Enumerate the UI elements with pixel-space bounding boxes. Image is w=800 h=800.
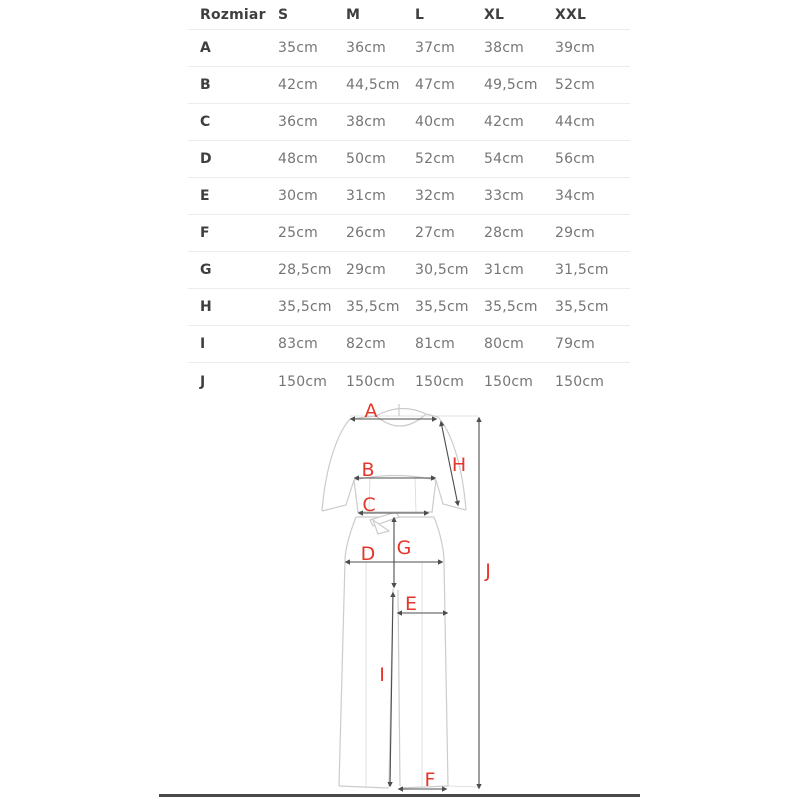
size-table-row-f: F 25cm 26cm 27cm 28cm 29cm <box>188 215 630 252</box>
size-value: 150cm <box>415 374 484 390</box>
size-table-header-row: Rozmiar S M L XL XXL <box>188 0 630 30</box>
size-table-row-i: I 83cm 82cm 81cm 80cm 79cm <box>188 326 630 363</box>
size-value: 29cm <box>555 225 630 241</box>
size-table-row-h: H 35,5cm 35,5cm 35,5cm 35,5cm 35,5cm <box>188 289 630 326</box>
size-table: Rozmiar S M L XL XXL A 35cm 36cm 37cm 38… <box>188 0 630 401</box>
label-D: D <box>361 543 376 565</box>
size-value: 42cm <box>484 114 555 130</box>
size-value: 28,5cm <box>278 262 346 278</box>
dimension-label: E <box>200 188 278 204</box>
size-value: 52cm <box>555 77 630 93</box>
left-leg-hem <box>339 786 389 788</box>
dimension-label: G <box>200 262 278 278</box>
size-value: 31,5cm <box>555 262 630 278</box>
size-value: 35,5cm <box>555 299 630 315</box>
hem-leader-line <box>448 786 479 787</box>
bottom-divider <box>159 794 640 797</box>
size-value: 47cm <box>415 77 484 93</box>
garment-measurement-diagram: A B C D E F G H I J <box>0 396 800 800</box>
dimension-label: C <box>200 114 278 130</box>
left-sleeve-hem <box>322 480 354 511</box>
label-H: H <box>452 454 466 476</box>
size-value: 40cm <box>415 114 484 130</box>
size-table-row-c: C 36cm 38cm 40cm 42cm 44cm <box>188 104 630 141</box>
label-I: I <box>379 664 385 686</box>
column-header-m: M <box>346 7 415 23</box>
size-value: 54cm <box>484 151 555 167</box>
bodice-seam-right <box>415 476 416 512</box>
size-value: 35cm <box>278 40 346 56</box>
size-value: 26cm <box>346 225 415 241</box>
size-value: 35,5cm <box>484 299 555 315</box>
size-value: 52cm <box>415 151 484 167</box>
bodice-right-side <box>432 480 436 512</box>
size-value: 83cm <box>278 336 346 352</box>
column-header-l: L <box>415 7 484 23</box>
dimension-label: I <box>200 336 278 352</box>
size-value: 48cm <box>278 151 346 167</box>
size-table-row-a: A 35cm 36cm 37cm 38cm 39cm <box>188 30 630 67</box>
size-value: 44,5cm <box>346 77 415 93</box>
measurement-labels: A B C D E F G H I J <box>361 400 491 791</box>
size-value: 150cm <box>278 374 346 390</box>
size-value: 33cm <box>484 188 555 204</box>
dimension-label: H <box>200 299 278 315</box>
label-E: E <box>405 593 417 615</box>
size-value: 34cm <box>555 188 630 204</box>
size-value: 35,5cm <box>346 299 415 315</box>
size-value: 38cm <box>484 40 555 56</box>
dimension-label: A <box>200 40 278 56</box>
size-value: 44cm <box>555 114 630 130</box>
right-shoulder <box>426 414 438 417</box>
size-value: 79cm <box>555 336 630 352</box>
size-value: 28cm <box>484 225 555 241</box>
size-table-row-b: B 42cm 44,5cm 47cm 49,5cm 52cm <box>188 67 630 104</box>
size-value: 56cm <box>555 151 630 167</box>
size-value: 31cm <box>346 188 415 204</box>
size-value: 30,5cm <box>415 262 484 278</box>
right-leg-inseam <box>398 590 400 786</box>
size-value: 35,5cm <box>415 299 484 315</box>
size-value: 39cm <box>555 40 630 56</box>
dimension-label: B <box>200 77 278 93</box>
size-value: 150cm <box>555 374 630 390</box>
size-value: 31cm <box>484 262 555 278</box>
back-neckline <box>376 408 426 416</box>
column-header-s: S <box>278 7 346 23</box>
right-leg-outer <box>434 517 448 786</box>
size-value: 82cm <box>346 336 415 352</box>
size-value: 27cm <box>415 225 484 241</box>
left-leg-outer <box>339 517 356 786</box>
label-C: C <box>362 494 375 516</box>
label-B: B <box>361 459 374 481</box>
size-value: 150cm <box>346 374 415 390</box>
size-value: 81cm <box>415 336 484 352</box>
size-value: 50cm <box>346 151 415 167</box>
size-chart-page: Rozmiar S M L XL XXL A 35cm 36cm 37cm 38… <box>0 0 800 800</box>
size-value: 35,5cm <box>278 299 346 315</box>
size-value: 80cm <box>484 336 555 352</box>
size-table-row-g: G 28,5cm 29cm 30,5cm 31cm 31,5cm <box>188 252 630 289</box>
label-G: G <box>397 537 412 559</box>
dimension-label: F <box>200 225 278 241</box>
label-A: A <box>365 400 378 422</box>
size-value: 29cm <box>346 262 415 278</box>
dimension-label: D <box>200 151 278 167</box>
right-sleeve-hem <box>436 480 466 510</box>
size-value: 150cm <box>484 374 555 390</box>
size-value: 38cm <box>346 114 415 130</box>
dimension-label: J <box>200 374 278 390</box>
bodice-left-side <box>354 480 358 512</box>
size-value: 42cm <box>278 77 346 93</box>
size-value: 36cm <box>346 40 415 56</box>
size-value: 25cm <box>278 225 346 241</box>
size-value: 36cm <box>278 114 346 130</box>
size-value: 49,5cm <box>484 77 555 93</box>
size-value: 30cm <box>278 188 346 204</box>
size-value: 37cm <box>415 40 484 56</box>
label-F: F <box>425 769 436 791</box>
column-header-rozmiar: Rozmiar <box>200 7 278 23</box>
column-header-xxl: XXL <box>555 7 630 23</box>
label-J: J <box>484 560 491 582</box>
left-sleeve-outer <box>322 419 350 511</box>
column-header-xl: XL <box>484 7 555 23</box>
size-table-row-e: E 30cm 31cm 32cm 33cm 34cm <box>188 178 630 215</box>
size-table-row-d: D 48cm 50cm 52cm 54cm 56cm <box>188 141 630 178</box>
size-value: 32cm <box>415 188 484 204</box>
